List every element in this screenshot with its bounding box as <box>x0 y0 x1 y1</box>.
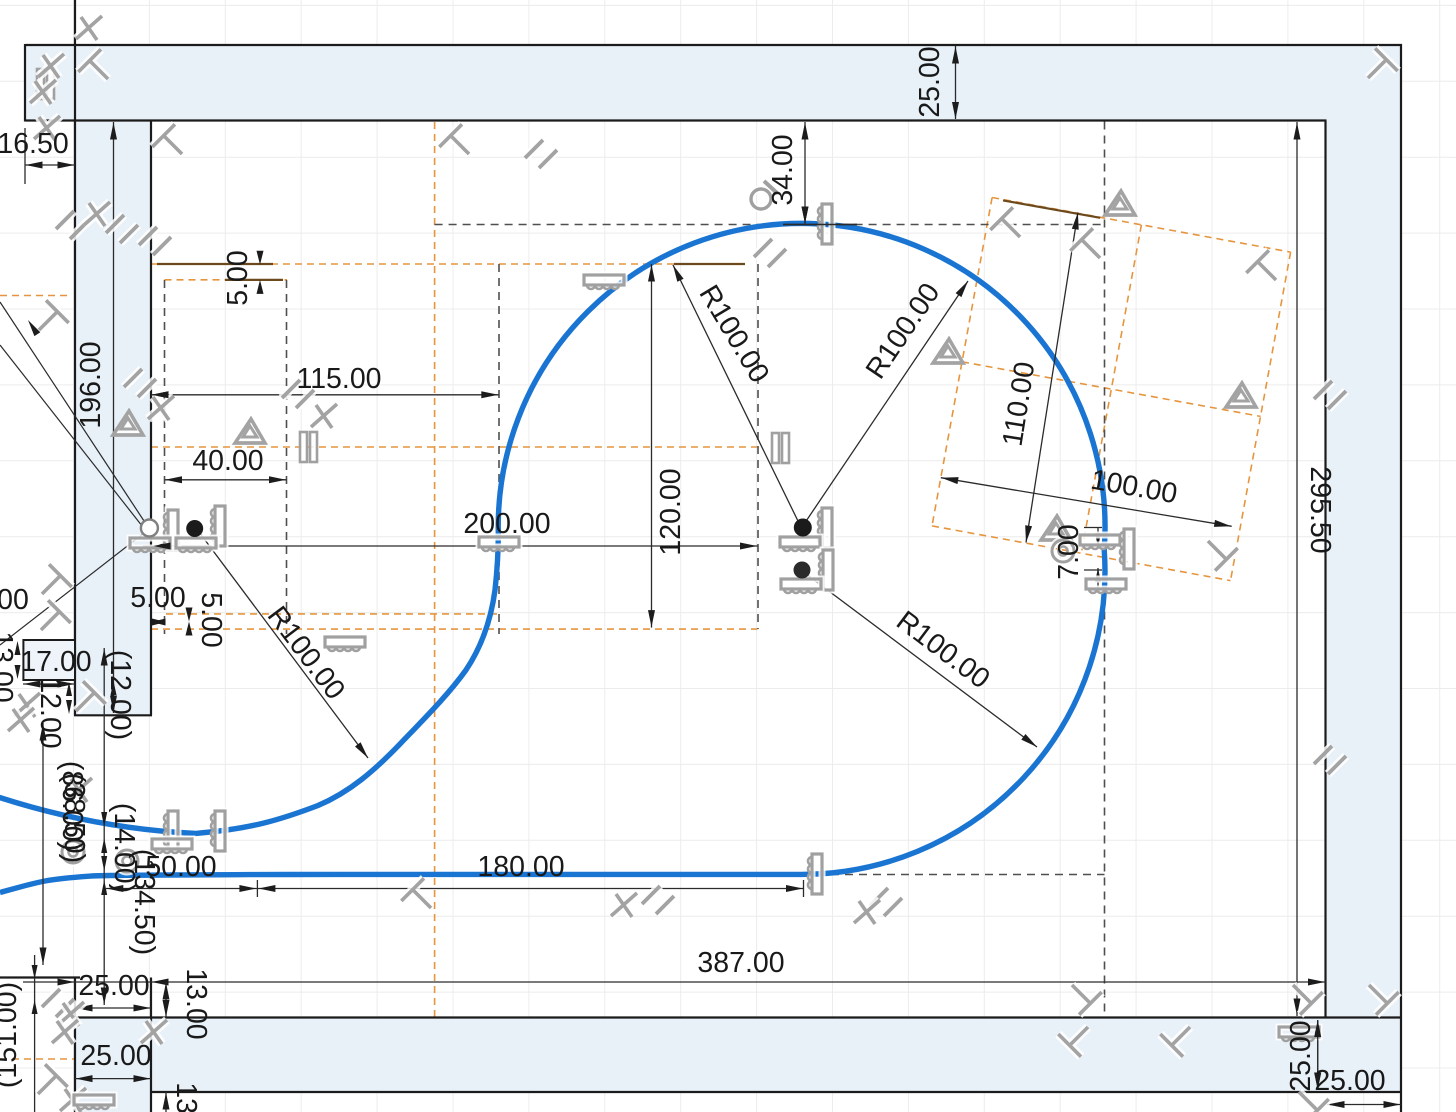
svg-text:5.00: 5.00 <box>222 250 254 305</box>
svg-text:13.00: 13.00 <box>180 968 212 1039</box>
svg-text:00: 00 <box>0 584 29 616</box>
svg-text:25.00: 25.00 <box>1314 1065 1385 1097</box>
svg-text:34.00: 34.00 <box>767 134 799 205</box>
svg-text:25.00: 25.00 <box>80 1040 151 1072</box>
svg-text:13.00: 13.00 <box>0 631 18 702</box>
svg-text:40.00: 40.00 <box>192 445 263 477</box>
svg-text:25.00: 25.00 <box>78 970 149 1002</box>
svg-text:200.00: 200.00 <box>463 508 550 540</box>
svg-text:180.00: 180.00 <box>477 851 564 883</box>
svg-text:387.00: 387.00 <box>697 947 784 979</box>
svg-text:5.00: 5.00 <box>130 582 185 614</box>
svg-text:17.00: 17.00 <box>20 646 91 678</box>
svg-text:(151.00): (151.00) <box>0 982 23 1088</box>
svg-text:120.00: 120.00 <box>655 468 687 555</box>
svg-text:16.50: 16.50 <box>0 128 69 160</box>
svg-text:(12.00): (12.00) <box>104 650 136 740</box>
svg-text:7.00: 7.00 <box>1053 524 1085 579</box>
svg-text:12.00: 12.00 <box>34 677 66 748</box>
svg-text:25.00: 25.00 <box>1285 1020 1317 1091</box>
svg-text:5.00: 5.00 <box>195 592 227 647</box>
svg-text:295.50: 295.50 <box>1304 466 1336 553</box>
svg-text:115.00: 115.00 <box>296 363 381 395</box>
svg-text:(134.50): (134.50) <box>128 849 160 955</box>
svg-text:13.0: 13.0 <box>170 1082 202 1112</box>
svg-text:(38.50): (38.50) <box>58 773 90 863</box>
svg-text:196.00: 196.00 <box>75 341 107 428</box>
svg-text:25.00: 25.00 <box>914 46 946 117</box>
